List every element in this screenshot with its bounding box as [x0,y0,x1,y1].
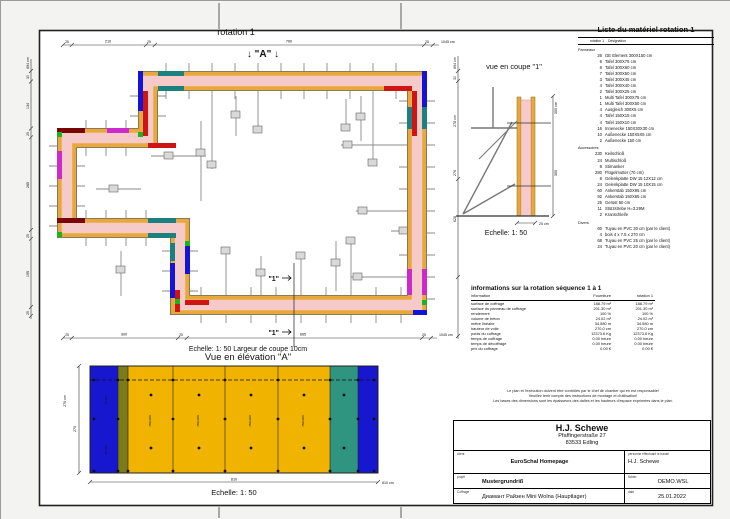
worker-label: personne effectuant le travail [628,452,708,456]
coffrage-value: Диамант Райзен Mini Wolna (Hauptlager) [482,494,622,500]
project-cell: projet Mustergrundriß [454,474,625,488]
svg-text:150x300: 150x300 [301,415,305,427]
coupe-concrete [521,100,531,216]
title-block: H.J. Schewe Pfaffingerstraße 27 83533 Ed… [453,420,711,504]
column-fourniture: Fourniture [563,294,611,299]
info-label: prix du coffrage [471,347,563,352]
file-value: DEMO.WSL [658,479,708,485]
dim-label: 50 150 [104,445,108,454]
svg-text:150x300: 150x300 [196,415,200,427]
dim-total-label: 694 cm [26,57,30,69]
info-table-title: informations sur la rotation séquence 1 … [471,285,655,292]
elevation-title: Vue en élévation "A" [205,352,291,363]
section-a-marker: ↓ "A" ↓ [247,49,279,60]
coupe-scale: Echelle: 1: 50 [485,230,528,237]
coupe-panel-left [517,97,521,216]
column-qty: rotation 1 [578,39,604,43]
worker-value: H.J. Schewe [628,459,708,465]
section-1-label-upper: "1" [268,276,279,283]
date-cell: date 25.01.2022 [625,489,710,503]
material-name: Außenecke 150 cm [605,138,641,144]
rotation-info-table: informations sur la rotation séquence 1 … [471,285,655,351]
disclaimer: Le plan et l'exécution doivent être cont… [453,389,713,405]
coffrage-cell: Coffrage Диамант Райзен Mini Wolna (Haup… [454,489,625,503]
material-list-header: rotation 1 Désignation [578,37,714,45]
material-qty: 2 [578,138,602,144]
dim-label: 760 [286,40,292,44]
elevation-panels [90,366,378,473]
coupe-panel-right [531,97,535,216]
divers-rows: 60 Tuyau en PVC 30 cm (par le client) 4 … [578,226,714,250]
info-row: prix du coffrage 0.00 € 0.00 € [471,347,655,352]
section-divers: Divers [578,221,714,225]
company-name: H.J. Schewe [454,423,710,433]
dim-total-label: 694 cm [453,57,457,69]
section-accessoires: Accessoires [578,146,714,150]
dim-total-label: 1045 cm [439,333,453,337]
coupe-title: vue en coupe "1" [486,62,542,71]
company-block: H.J. Schewe Pfaffingerstraße 27 83533 Ed… [454,421,710,451]
dim-label: 25 [65,40,69,44]
dim-label: 195 [26,271,30,277]
dim-label: 276 [453,170,457,176]
worker-cell: personne effectuant le travail H.J. Sche… [625,451,710,473]
material-list: Liste du matériel rotation 1 rotation 1 … [578,25,714,250]
file-cell: fichier DEMO.WSL [625,474,710,488]
dim-label: 300 [554,170,558,176]
dim-label: 30 [26,75,30,79]
material-qty: 2 [578,212,602,218]
dim-total-label: 810 cm [382,481,394,485]
plan-title: rotation 1 [217,27,255,37]
info-table-rows: surface de coffrage 188.79 m² 188.79 m² … [471,302,655,351]
material-row: 2 Außenecke 150 cm [578,138,714,144]
dim-label: 25 cm [539,222,549,226]
dim-label: 25 [179,333,183,337]
section-panneaux: Panneaux [578,48,714,52]
dim-label: 30 [453,76,457,80]
dim-total-label: 1045 cm [441,40,455,44]
drawing-sheet-view: rotation 1 ↓ "A" ↓ [0,0,730,519]
svg-text:150x300: 150x300 [248,415,252,427]
dim-label: 25 [147,40,151,44]
material-qty: 24 [578,244,602,250]
info-fourniture-value: 0.00 € [563,347,611,352]
info-table-header: information Fourniture rotation 1 [471,294,655,301]
dim-total-label: 300 cm [554,102,558,114]
dim-label: 50 150 [104,395,108,404]
project-value: Mustergrundriß [482,479,622,485]
dim-label: 25 [425,40,429,44]
dim-label: 25 [26,311,30,315]
dim-label: 265 [26,182,30,188]
client-value: EuroSchal Homepage [457,459,622,465]
accessoires-rows: 230 Keilschloß 24 Multischloß 8 Stirnank… [578,151,714,218]
dim-label: 25 [26,234,30,238]
dim-label: 628 [453,216,457,222]
dim-label: 134 [26,103,30,109]
dim-label: 810 [231,478,237,482]
dim-label: 270 [73,426,77,432]
material-row: 24 Tuyau en PVC 20 cm (par le client) [578,244,714,250]
info-rotation-value: 0.00 € [611,347,653,352]
panneaux-rows: 26 GE Element 300X150 cm 8 Tafel 300X75 … [578,53,714,144]
svg-text:150x300: 150x300 [148,415,152,427]
column-information: information [471,294,563,299]
dim-total-label: 270 cm [63,395,67,407]
material-list-title: Liste du matériel rotation 1 [578,25,714,34]
dim-label: 300 [121,333,127,337]
dim-label: 665 [300,333,306,337]
dim-label: 25 [65,333,69,337]
dim-label: 25 [422,333,426,337]
disclaimer-line-3: Les bases des dimensions sont les épaiss… [453,399,713,404]
material-row: 2 Kranschleife [578,212,714,218]
date-value: 25.01.2022 [658,494,708,500]
client-label: client [457,452,622,456]
elevation-scale: Echelle: 1: 50 [211,488,256,497]
dim-label: 278 cm [453,115,457,127]
company-address-2: 83533 Edling [454,440,710,447]
column-rotation: rotation 1 [611,294,653,299]
dim-label: 25 [26,132,30,136]
material-name: Tuyau en PVC 20 cm (par le client) [605,244,670,250]
client-cell: client EuroSchal Homepage [454,451,625,473]
material-name: Kranschleife [605,212,628,218]
plan-dim-left: 694 cm 30 134 25 265 25 195 25 [26,57,33,319]
section-1-label-lower: "1" [268,330,279,337]
column-designation: Désignation [608,39,626,43]
dim-label: 210 [105,40,111,44]
